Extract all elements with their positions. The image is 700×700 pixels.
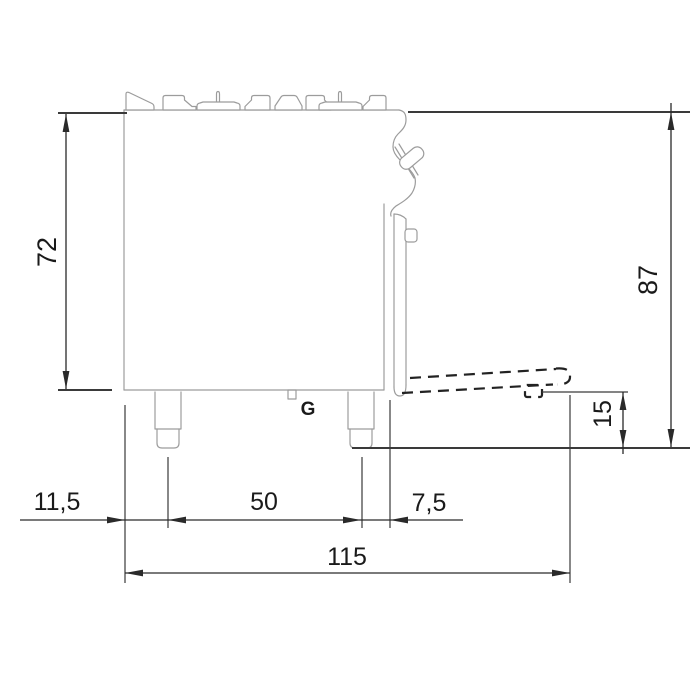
arrowhead bbox=[552, 570, 570, 577]
oven-door-hinge bbox=[394, 385, 406, 396]
dim-label-left-offset: 11,5 bbox=[34, 488, 81, 516]
arrowhead bbox=[107, 517, 125, 524]
dimension-lines bbox=[20, 103, 674, 576]
front-leg bbox=[155, 392, 181, 448]
oven-door-faces bbox=[394, 214, 406, 387]
burner-pin bbox=[217, 92, 220, 104]
rear-leg bbox=[348, 392, 374, 448]
oven-door-top bbox=[394, 214, 406, 219]
dim-label-base-height: 15 bbox=[589, 400, 617, 428]
technical-drawing-canvas: 72 87 15 11,5 50 7,5 115 G bbox=[0, 0, 700, 700]
burner-cap bbox=[197, 102, 240, 110]
appliance-body-outline bbox=[124, 110, 426, 448]
arrowhead bbox=[63, 114, 70, 132]
arrowhead bbox=[63, 371, 70, 389]
open-door-top-face bbox=[410, 369, 556, 378]
oven-door-handle bbox=[405, 229, 417, 242]
burner-grate-profile bbox=[126, 92, 386, 111]
arrowhead bbox=[343, 517, 361, 524]
dim-label-leg-spacing: 50 bbox=[250, 488, 278, 516]
grate-bracket-end bbox=[363, 96, 386, 111]
gas-connection-stub bbox=[288, 390, 296, 399]
grate-bracket bbox=[245, 96, 270, 111]
grate-bracket bbox=[163, 96, 196, 111]
gas-connection-label: G bbox=[301, 399, 316, 420]
arrowhead bbox=[125, 570, 143, 577]
arrowhead bbox=[390, 517, 408, 524]
burner-cap bbox=[319, 102, 362, 110]
gas-range-side-view-drawing: 72 87 15 11,5 50 7,5 115 G bbox=[0, 0, 700, 700]
open-door-handle bbox=[525, 385, 542, 397]
dim-label-overall-height: 87 bbox=[633, 265, 663, 295]
arrowhead bbox=[668, 429, 675, 447]
arrowhead bbox=[620, 393, 627, 410]
burner-pin bbox=[339, 92, 342, 104]
open-door-end-cap bbox=[556, 368, 570, 384]
dim-label-body-height: 72 bbox=[32, 237, 62, 267]
grate-wedge-left bbox=[126, 92, 154, 110]
dim-label-front-offset: 7,5 bbox=[412, 489, 447, 517]
grate-bar bbox=[275, 96, 302, 111]
dim-label-overall-depth: 115 bbox=[327, 543, 367, 571]
arrowhead bbox=[668, 112, 675, 130]
reference-lines bbox=[58, 112, 690, 583]
arrowhead bbox=[620, 430, 627, 447]
arrowhead bbox=[168, 517, 186, 524]
open-door-dashed-outline bbox=[402, 368, 570, 397]
